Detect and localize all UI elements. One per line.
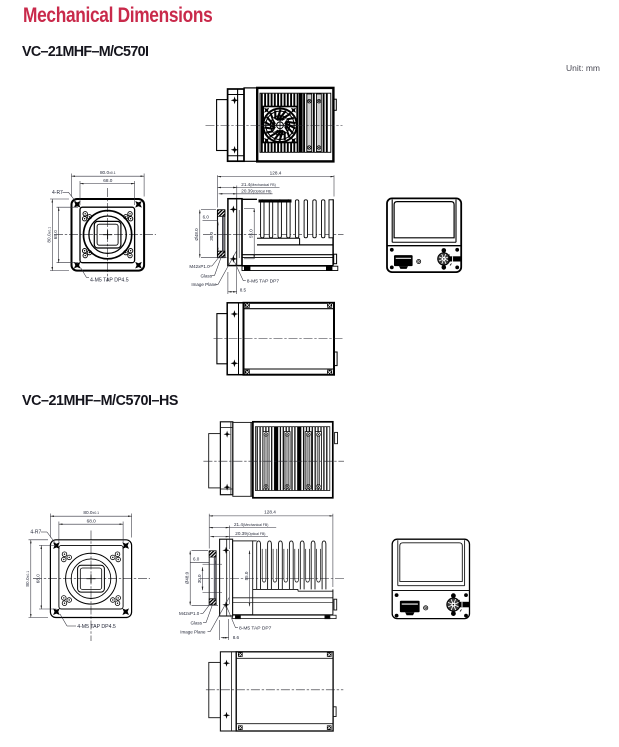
svg-text:8-M5 TAP DP7: 8-M5 TAP DP7 <box>247 278 280 284</box>
svg-text:8.5: 8.5 <box>240 287 247 292</box>
svg-text:21.4(Mechanical FB): 21.4(Mechanical FB) <box>234 522 268 527</box>
svg-text:Glass: Glass <box>191 620 203 625</box>
svg-text:Glass: Glass <box>201 273 213 278</box>
svg-text:Image Plane: Image Plane <box>191 282 217 287</box>
svg-text:55.0: 55.0 <box>244 571 249 580</box>
svg-text:80.0±0.1: 80.0±0.1 <box>25 571 30 587</box>
svg-text:M42xP1.0: M42xP1.0 <box>179 611 200 616</box>
svg-text:30.0: 30.0 <box>197 574 202 583</box>
svg-text:4-R7: 4-R7 <box>52 190 63 196</box>
svg-text:68.0: 68.0 <box>36 574 41 584</box>
svg-text:128.4: 128.4 <box>270 171 282 176</box>
svg-text:20.39(Optical FB): 20.39(Optical FB) <box>241 188 271 193</box>
svg-text:4-M5 TAP DP4.5: 4-M5 TAP DP4.5 <box>77 624 116 630</box>
svg-text:Image Plane: Image Plane <box>180 629 206 634</box>
svg-text:4-M5 TAP DP4.5: 4-M5 TAP DP4.5 <box>90 277 129 283</box>
svg-text:4-R7: 4-R7 <box>30 530 41 536</box>
svg-text:30.0: 30.0 <box>209 232 214 241</box>
svg-text:Ø48.0: Ø48.0 <box>194 228 199 241</box>
svg-text:80.0±0.1: 80.0±0.1 <box>100 170 116 175</box>
svg-text:21.4(Mechanical FB): 21.4(Mechanical FB) <box>241 182 275 187</box>
svg-text:6.0: 6.0 <box>193 557 200 562</box>
svg-text:80.0±0.1: 80.0±0.1 <box>47 227 52 243</box>
svg-text:80.0±0.1: 80.0±0.1 <box>83 510 99 515</box>
svg-text:6.0: 6.0 <box>203 215 210 220</box>
svg-text:68.0: 68.0 <box>53 230 58 240</box>
svg-text:68.0: 68.0 <box>103 178 113 183</box>
svg-text:128.4: 128.4 <box>264 510 276 515</box>
svg-text:68.0: 68.0 <box>87 519 97 524</box>
svg-text:8.6: 8.6 <box>233 635 240 640</box>
svg-text:M42xP1.0: M42xP1.0 <box>189 264 210 269</box>
svg-text:20.39(Optical FB): 20.39(Optical FB) <box>235 531 265 536</box>
svg-text:55.0: 55.0 <box>248 229 253 238</box>
svg-text:8-M5 TAP DP7: 8-M5 TAP DP7 <box>239 625 272 631</box>
svg-text:Ø48.0: Ø48.0 <box>185 571 190 584</box>
